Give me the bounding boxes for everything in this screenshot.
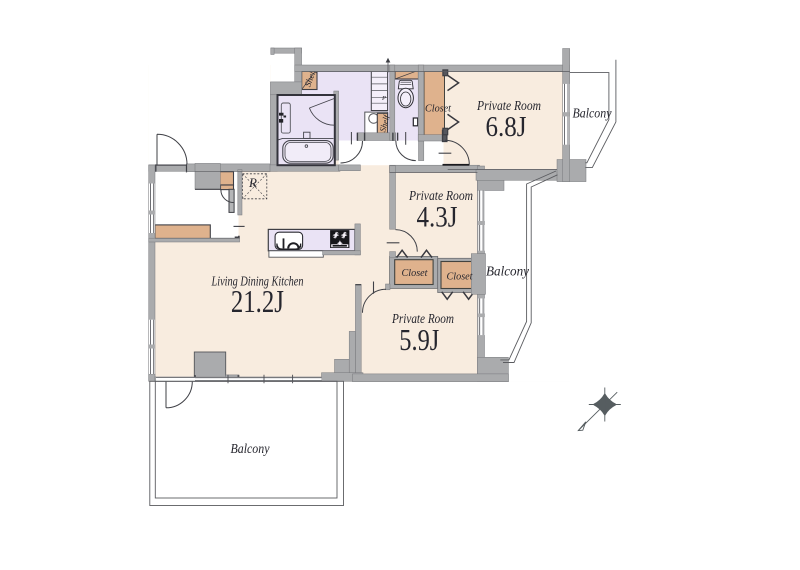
svg-text:Closet: Closet xyxy=(425,103,452,115)
svg-text:R: R xyxy=(248,175,257,190)
svg-text:4.3J: 4.3J xyxy=(417,201,458,234)
svg-text:Balcony: Balcony xyxy=(486,264,529,279)
svg-text:Closet: Closet xyxy=(447,271,474,283)
svg-text:Balcony: Balcony xyxy=(231,441,270,456)
svg-text:Balcony: Balcony xyxy=(573,106,612,121)
svg-text:6.8J: 6.8J xyxy=(486,111,527,143)
svg-text:P: P xyxy=(381,95,386,102)
svg-text:5.9J: 5.9J xyxy=(399,322,439,357)
svg-text:Closet: Closet xyxy=(402,267,429,279)
svg-text:21.2J: 21.2J xyxy=(231,283,284,319)
